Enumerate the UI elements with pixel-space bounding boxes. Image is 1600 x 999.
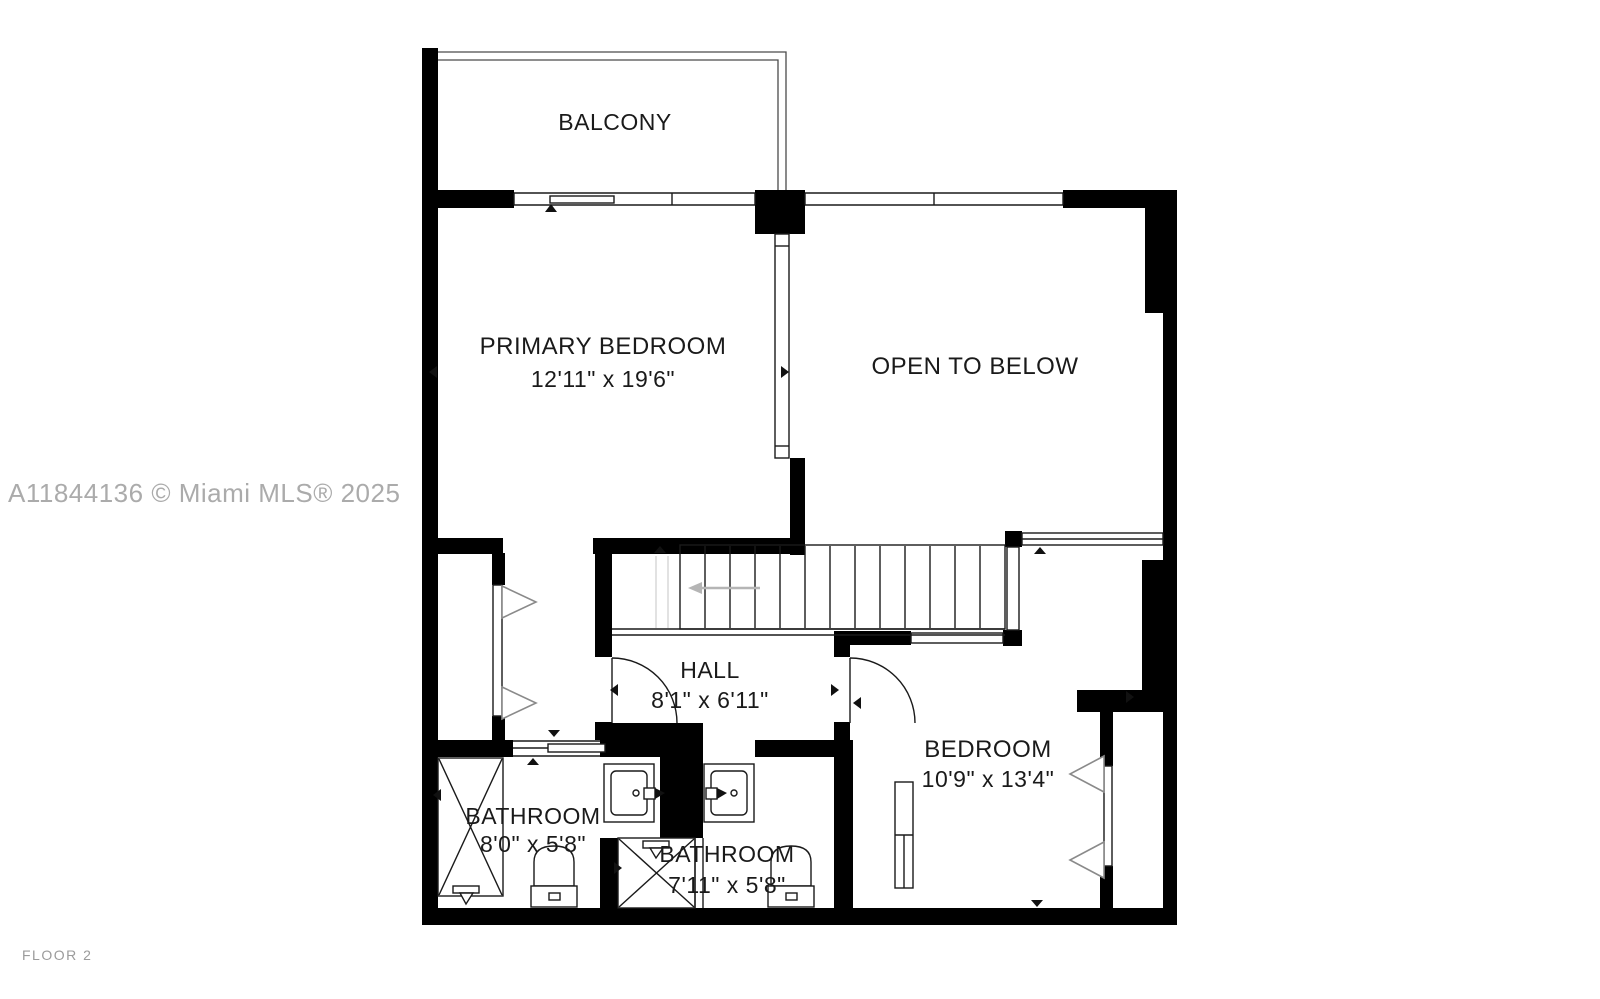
floorplan-page: BALCONY PRIMARY BEDROOM 12'11" x 19'6" O… xyxy=(0,0,1600,999)
glass-railing xyxy=(1007,547,1019,630)
room-label-balcony: BALCONY xyxy=(558,109,671,135)
balcony-sliding-door xyxy=(514,193,755,205)
room-dims-bathroom-1: 8'0" x 5'8" xyxy=(480,831,586,857)
stairs-direction-arrow xyxy=(688,582,760,594)
stairs xyxy=(612,545,1005,635)
sink-icon xyxy=(604,764,665,822)
door-bedroom xyxy=(834,658,915,723)
pocket-door-bathroom xyxy=(513,741,605,756)
sliding-door-bedroom xyxy=(895,782,913,888)
room-dims-hall: 8'1" x 6'11" xyxy=(651,687,769,713)
room-label-primary-bedroom: PRIMARY BEDROOM xyxy=(480,333,727,360)
closet-door-right xyxy=(1070,756,1112,878)
room-dims-primary-bedroom: 12'11" x 19'6" xyxy=(531,366,675,392)
room-label-hall: HALL xyxy=(680,657,740,683)
glass-partition xyxy=(775,234,789,458)
mls-watermark: A11844136 © Miami MLS® 2025 xyxy=(8,478,400,508)
room-label-bathroom-1: BATHROOM xyxy=(465,803,600,829)
room-label-bedroom: BEDROOM xyxy=(924,736,1052,763)
room-dims-bedroom: 10'9" x 13'4" xyxy=(922,766,1055,792)
sink-icon-2 xyxy=(704,764,754,822)
room-dims-bathroom-2: 7'11" x 5'8" xyxy=(668,872,786,898)
window-top xyxy=(805,193,1063,205)
room-label-bathroom-2: BATHROOM xyxy=(659,841,794,867)
closet-door-left xyxy=(493,585,536,719)
glass-railing-window xyxy=(1022,533,1163,545)
room-label-open-to-below: OPEN TO BELOW xyxy=(872,353,1079,380)
floorplan-drawing: BALCONY PRIMARY BEDROOM 12'11" x 19'6" O… xyxy=(0,0,1600,999)
walls xyxy=(422,48,1177,925)
floor-label: FLOOR 2 xyxy=(22,947,92,963)
